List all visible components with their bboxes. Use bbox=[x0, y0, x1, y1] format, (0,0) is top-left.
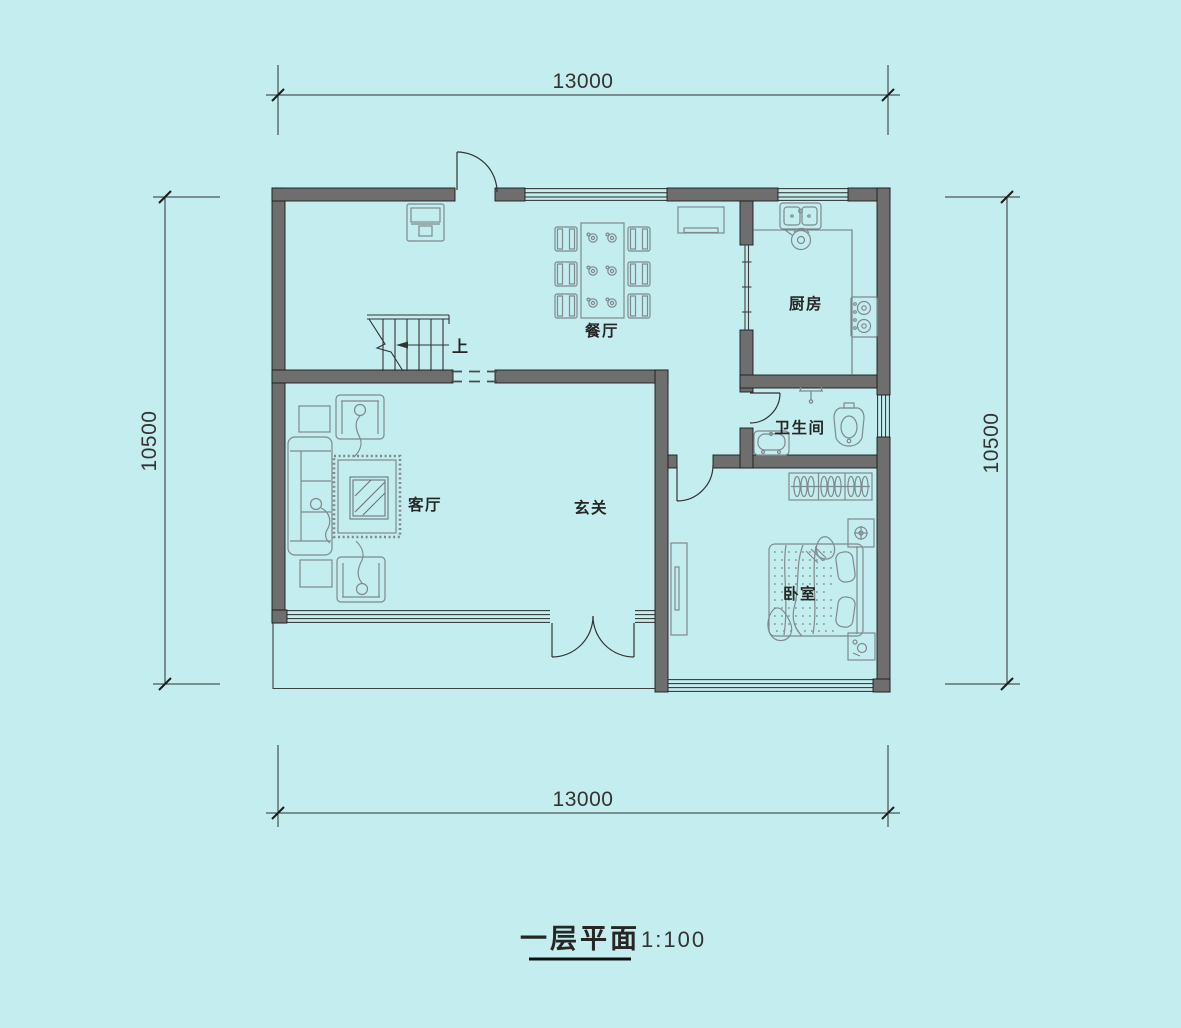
plan-title: 一层平面 bbox=[520, 924, 640, 954]
room-label-living: 客厅 bbox=[408, 495, 442, 514]
window-living-south bbox=[287, 611, 550, 623]
room-label-bathroom: 卫生间 bbox=[774, 418, 825, 437]
dimension-left: 10500 bbox=[138, 191, 220, 690]
plan-scale: 1:100 bbox=[641, 927, 706, 952]
dimension-bottom-value: 13000 bbox=[553, 788, 614, 811]
dining-chairs bbox=[555, 227, 650, 318]
title-block: 一层平面 1:100 bbox=[520, 924, 706, 959]
side-table-top bbox=[299, 406, 330, 432]
sideboard-tv-cabinet bbox=[678, 207, 724, 233]
door-main-entrance-double bbox=[552, 616, 634, 657]
stairs-up-arrow bbox=[396, 342, 408, 349]
dimension-right-value: 10500 bbox=[980, 413, 1003, 474]
bedroom-tv-board bbox=[671, 543, 687, 635]
dimension-top-value: 13000 bbox=[553, 70, 614, 93]
dimension-top: 13000 bbox=[266, 65, 900, 135]
passage-dashed-opening bbox=[451, 372, 497, 382]
dimension-left-value: 10500 bbox=[138, 411, 161, 472]
room-label-bedroom: 卧室 bbox=[783, 584, 817, 603]
window-right-bathroom bbox=[878, 395, 890, 437]
side-table-bottom bbox=[300, 560, 332, 587]
dimension-right: 10500 bbox=[945, 191, 1020, 690]
person-head bbox=[357, 584, 368, 595]
window-bedroom-south bbox=[668, 680, 873, 692]
door-bathroom bbox=[750, 393, 780, 423]
door-top-entry bbox=[457, 152, 497, 192]
room-label-kitchen: 厨房 bbox=[789, 294, 823, 313]
floor-plan-canvas: 13000 13000 10500 10500 bbox=[0, 0, 1181, 1028]
floor-plan-drawing: 13000 13000 10500 10500 bbox=[0, 0, 1181, 1028]
window-top-dining bbox=[525, 189, 667, 201]
draped-clothes bbox=[816, 537, 834, 559]
room-label-foyer: 玄关 bbox=[574, 498, 608, 517]
person-body bbox=[356, 541, 363, 583]
person-body bbox=[354, 416, 361, 457]
stove-cooktop bbox=[851, 297, 877, 337]
dining-table bbox=[581, 223, 624, 318]
toilet bbox=[834, 403, 864, 446]
kitchen-sliding-opening bbox=[742, 245, 752, 330]
porch-outline bbox=[273, 623, 655, 689]
shoe-cabinet bbox=[407, 204, 444, 241]
kitchen-sink bbox=[780, 203, 821, 229]
armchair-top bbox=[336, 395, 384, 457]
rug bbox=[334, 456, 400, 537]
shower-head bbox=[799, 387, 823, 403]
window-foyer-south bbox=[635, 611, 655, 623]
dimension-bottom: 13000 bbox=[266, 745, 900, 827]
person-on-sofa bbox=[311, 499, 331, 544]
nightstand-top bbox=[848, 519, 874, 547]
nightstand-bottom bbox=[848, 633, 875, 660]
coffee-table bbox=[350, 477, 388, 519]
door-bedroom bbox=[677, 465, 713, 501]
stairs-up-label: 上 bbox=[452, 338, 468, 356]
armchair-bottom bbox=[337, 541, 385, 602]
person-head bbox=[355, 405, 366, 416]
kettle bbox=[785, 228, 811, 249]
wardrobe bbox=[789, 473, 872, 500]
stairs bbox=[367, 315, 449, 371]
room-label-dining: 餐厅 bbox=[584, 321, 619, 340]
window-top-kitchen bbox=[778, 189, 848, 201]
